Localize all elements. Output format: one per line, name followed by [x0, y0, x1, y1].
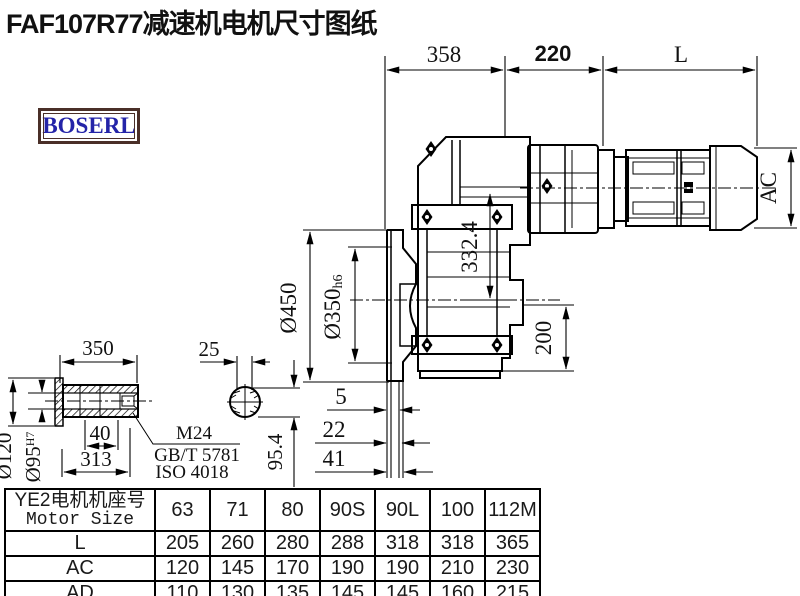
motor-diameter-dim: AC — [754, 148, 797, 228]
table-cell: 170 — [265, 556, 320, 581]
table-cell: 112M — [485, 489, 540, 531]
row-label: AD — [5, 581, 155, 596]
shaft-hub — [684, 189, 693, 193]
dim-bore: Ø95H7 — [21, 432, 45, 483]
dim-5: 5 — [335, 384, 347, 409]
row-label: L — [5, 531, 155, 556]
dim-22: 22 — [323, 417, 346, 442]
motor — [520, 146, 775, 230]
table-cell: 110 — [155, 581, 210, 596]
table-cell: 145 — [375, 581, 430, 596]
dim-shaft-length: 350 — [82, 336, 114, 360]
motor-size-table: YE2电机机座号 Motor Size 63 71 80 90S 90L 100… — [4, 488, 541, 596]
table-header-row: YE2电机机座号 Motor Size 63 71 80 90S 90L 100… — [5, 489, 540, 531]
vent-plug-icon — [542, 178, 553, 194]
shaft-hub — [684, 182, 693, 187]
table-cell: 318 — [375, 531, 430, 556]
top-dimension-chain: 358 220 L — [385, 41, 757, 229]
table-cell: 130 — [210, 581, 265, 596]
dim-shaft-od: Ø120 — [0, 433, 16, 480]
table-header-cell: YE2电机机座号 Motor Size — [5, 489, 155, 531]
table-row: AD 110 130 135 145 145 160 215 — [5, 581, 540, 596]
dim-key-width: 25 — [199, 337, 220, 361]
oil-plug-icon — [422, 209, 433, 225]
table-cell: 318 — [430, 531, 485, 556]
table-cell: 365 — [485, 531, 540, 556]
header-cn: YE2电机机座号 — [6, 491, 154, 511]
eyebolt-icon — [426, 141, 437, 157]
table-cell: 160 — [430, 581, 485, 596]
table-row: AC 120 145 170 190 190 210 230 — [5, 556, 540, 581]
oil-plug-icon — [492, 337, 503, 353]
oil-plug-icon — [492, 209, 503, 225]
dim-220: 220 — [535, 41, 572, 66]
table-cell: 215 — [485, 581, 540, 596]
oil-plug-icon — [422, 337, 433, 353]
dim-313: 313 — [80, 447, 112, 471]
dim-41: 41 — [323, 446, 346, 471]
dim-358: 358 — [427, 42, 462, 67]
drawing-sheet: FAF107R77减速机电机尺寸图纸 BOSERL 358 — [0, 0, 800, 596]
table-cell: 205 — [155, 531, 210, 556]
dim-center-distance: 332.4 — [457, 221, 482, 273]
table-cell: 80 — [265, 489, 320, 531]
table-row: L 205 260 280 288 318 318 365 — [5, 531, 540, 556]
dim-key-height: 95.4 — [263, 433, 287, 470]
header-en: Motor Size — [6, 511, 154, 530]
table-cell: 190 — [320, 556, 375, 581]
table-cell: 190 — [375, 556, 430, 581]
table-cell: 288 — [320, 531, 375, 556]
dim-spigot-diameter: Ø350h6 — [320, 274, 346, 339]
table-cell: 210 — [430, 556, 485, 581]
motor-adapter — [528, 145, 598, 233]
dim-L: L — [674, 42, 688, 67]
table-cell: 260 — [210, 531, 265, 556]
dim-AC: AC — [756, 172, 781, 204]
iso-standard-label: ISO 4018 — [155, 462, 228, 483]
dim-40: 40 — [90, 421, 111, 445]
flange-offset-dims: 5 22 41 — [315, 380, 433, 478]
table-cell: 145 — [210, 556, 265, 581]
thread-label: M24 — [176, 423, 212, 444]
table-cell: 90L — [375, 489, 430, 531]
table-cell: 230 — [485, 556, 540, 581]
dim-200: 200 — [531, 321, 556, 356]
table-cell: 120 — [155, 556, 210, 581]
table-cell: 280 — [265, 531, 320, 556]
table-cell: 145 — [320, 581, 375, 596]
table-cell: 90S — [320, 489, 375, 531]
table-cell: 135 — [265, 581, 320, 596]
table-cell: 63 — [155, 489, 210, 531]
table-cell: 71 — [210, 489, 265, 531]
row-label: AC — [5, 556, 155, 581]
table-cell: 100 — [430, 489, 485, 531]
dim-flange-diameter: Ø450 — [276, 282, 301, 333]
